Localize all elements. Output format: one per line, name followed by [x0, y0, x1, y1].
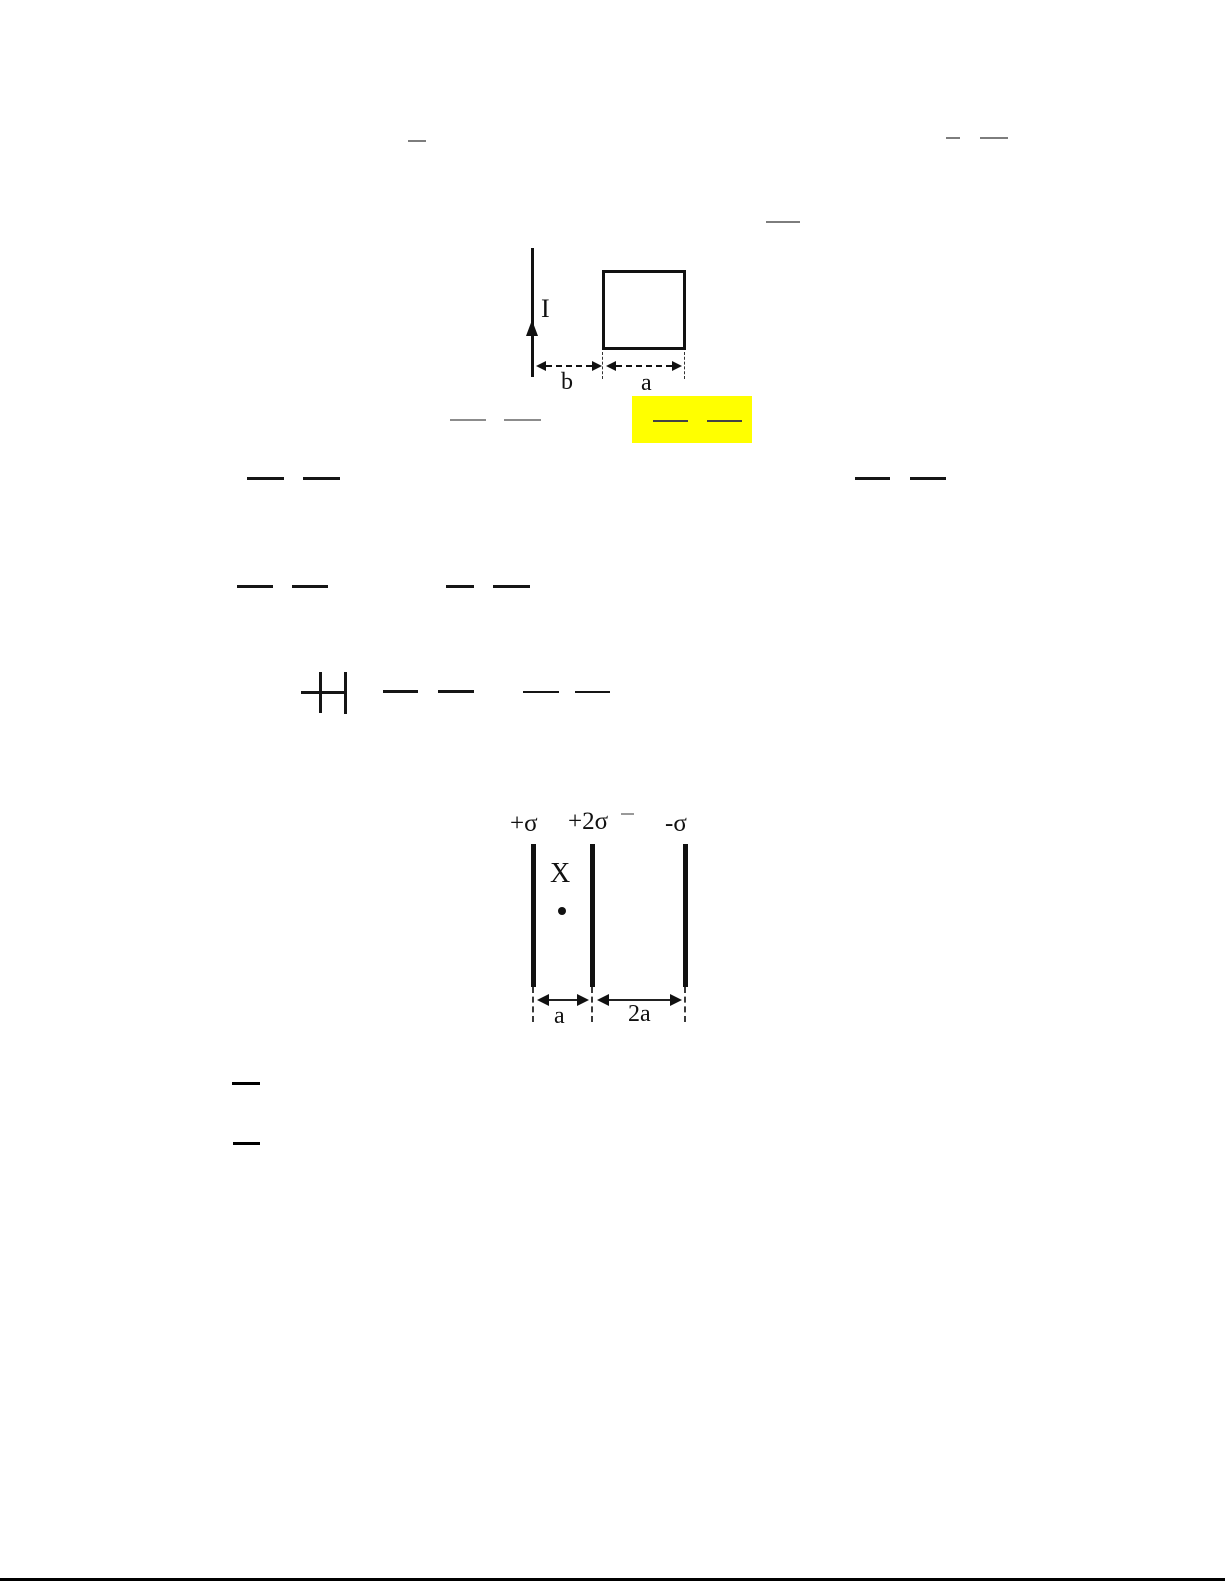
fraction-bar	[0, 1578, 1225, 1581]
fraction-bar	[910, 477, 946, 480]
fraction-bar	[855, 477, 890, 480]
vertical-bar	[344, 672, 347, 714]
charged-sheet-2	[590, 844, 595, 987]
fraction-bar	[766, 221, 800, 223]
dim-b-label: b	[561, 370, 573, 394]
fraction-bar	[621, 813, 634, 815]
fraction-bar	[446, 585, 474, 588]
fraction-bar	[438, 690, 474, 693]
vertical-bar	[319, 672, 322, 713]
extension-dash-3	[684, 987, 686, 1022]
fraction-bar	[383, 690, 418, 693]
point-x-dot	[558, 907, 566, 915]
current-wire	[531, 248, 534, 377]
sheet-label-minus-sigma: -σ	[665, 811, 687, 836]
sheet-label-plus-2sigma: +2σ	[568, 809, 608, 834]
fraction-bar	[233, 1142, 260, 1145]
sheet-label-plus-sigma: +σ	[510, 811, 538, 836]
fraction-bar	[301, 691, 319, 694]
fraction-bar	[232, 1082, 260, 1085]
extension-dash-1	[532, 987, 534, 1022]
fraction-bar	[493, 585, 530, 588]
fraction-bar	[504, 419, 541, 421]
fraction-bar	[946, 137, 960, 139]
fraction-bar	[523, 691, 559, 693]
fraction-bar	[653, 420, 688, 422]
current-label: I	[541, 296, 550, 322]
arrowhead-left-icon	[606, 361, 616, 371]
arrowhead-right-icon	[577, 994, 589, 1006]
extension-dash-right	[684, 352, 685, 379]
fraction-bar	[237, 585, 273, 588]
arrowhead-left-icon	[537, 994, 549, 1006]
arrowhead-right-icon	[672, 361, 682, 371]
square-loop	[602, 270, 686, 350]
fraction-bar	[575, 691, 610, 693]
fraction-bar	[408, 140, 426, 142]
fraction-bar	[707, 420, 742, 422]
fraction-bar	[980, 137, 1008, 139]
charged-sheet-3	[683, 844, 688, 987]
fraction-bar	[303, 477, 340, 480]
extension-dash-2	[591, 987, 593, 1022]
fraction-bar	[292, 585, 328, 588]
document-page: I b a +σ +2σ -σ X	[0, 0, 1225, 1585]
extension-dash-left	[602, 352, 603, 379]
point-x-label: X	[550, 860, 570, 888]
dim-line	[549, 999, 577, 1001]
dim-a-label: a	[641, 371, 652, 395]
charged-sheet-1	[531, 844, 536, 987]
fraction-bar	[247, 477, 284, 480]
arrowhead-left-icon	[597, 994, 609, 1006]
dim-line	[616, 365, 672, 367]
current-arrow-icon	[526, 320, 538, 336]
arrowhead-right-icon	[592, 361, 602, 371]
arrowhead-left-icon	[536, 361, 546, 371]
dim-line	[546, 365, 592, 367]
fraction-bar	[450, 419, 486, 421]
dim-2a-label: 2a	[628, 1002, 651, 1026]
dim-a2-label: a	[554, 1004, 565, 1028]
fraction-bar	[322, 691, 344, 694]
arrowhead-right-icon	[670, 994, 682, 1006]
